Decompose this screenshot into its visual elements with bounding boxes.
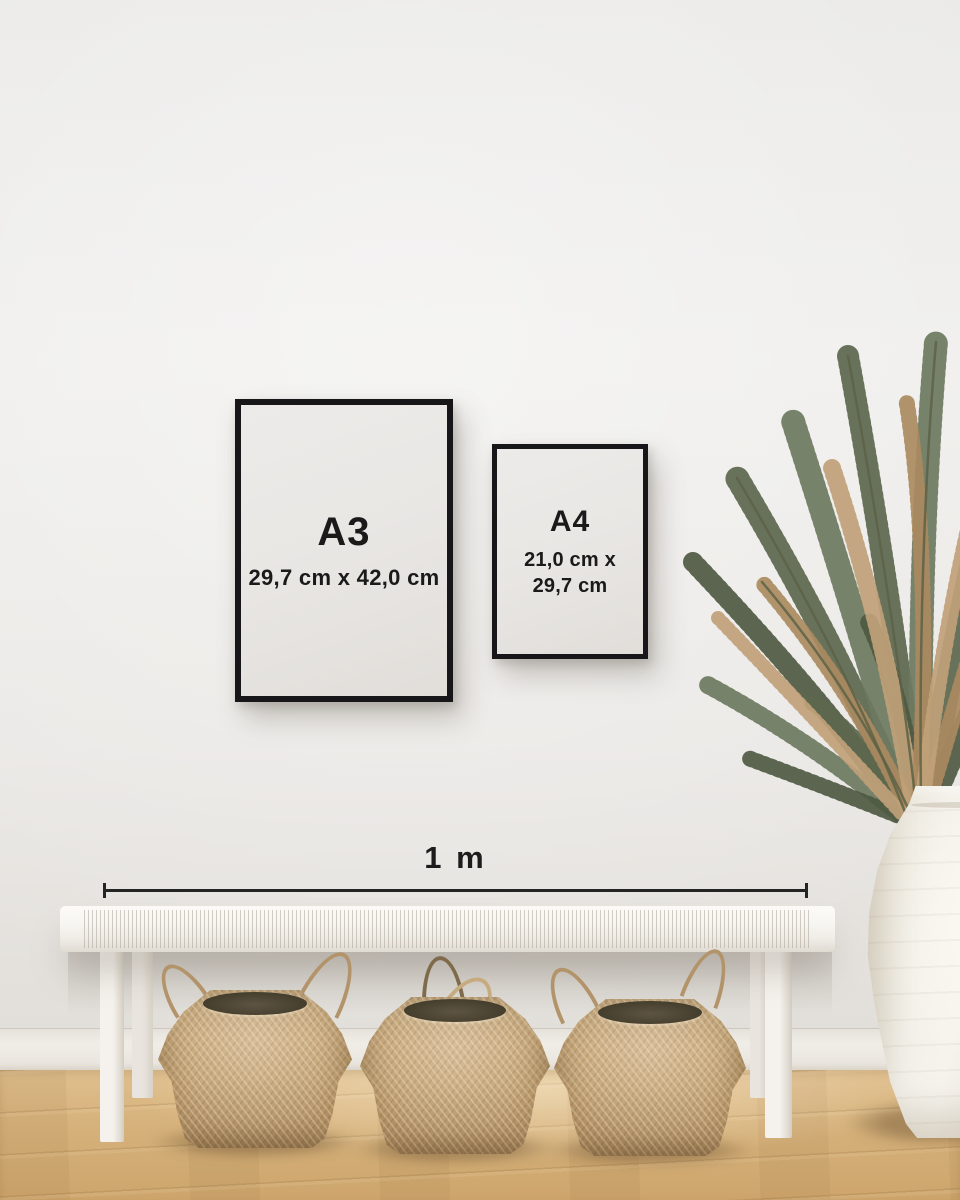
frame-a4-dimensions-line2: 29,7 cm: [524, 573, 616, 599]
frame-a3-paper: A3 29,7 cm x 42,0 cm: [241, 405, 447, 696]
frame-a4-dimensions: 21,0 cm x 29,7 cm: [524, 547, 616, 599]
frame-a4: A4 21,0 cm x 29,7 cm: [492, 444, 648, 659]
bench-leg-left-front: [100, 948, 124, 1142]
frame-a3-dimensions: 29,7 cm x 42,0 cm: [248, 565, 439, 591]
vase-rim: [911, 802, 960, 808]
seagrass-basket-3: [554, 999, 746, 1156]
seagrass-basket-1: [158, 990, 352, 1148]
size-guide-mockup-scene: A3 29,7 cm x 42,0 cm A4 21,0 cm x 29,7 c…: [0, 0, 960, 1200]
scale-bar-right-cap: [805, 883, 808, 898]
bench-seat: [60, 906, 835, 952]
basket-1-opening: [203, 992, 308, 1015]
bench-weave-texture: [84, 910, 811, 948]
bench-leg-left-back: [132, 948, 153, 1098]
scale-bar-label: 1 m: [103, 840, 808, 876]
scale-bar-left-cap: [103, 883, 106, 898]
bench-leg-right-front: [765, 948, 792, 1138]
frame-a4-paper: A4 21,0 cm x 29,7 cm: [497, 449, 643, 654]
frame-a3-size-label: A3: [317, 510, 370, 555]
seagrass-basket-2: [360, 997, 550, 1154]
frame-a4-size-label: A4: [550, 505, 590, 539]
frame-a4-dimensions-line1: 21,0 cm x: [524, 547, 616, 573]
basket-3-opening: [598, 1001, 702, 1024]
basket-2-opening: [404, 999, 507, 1022]
frame-a3: A3 29,7 cm x 42,0 cm: [235, 399, 453, 702]
scale-bar-line: [103, 889, 808, 892]
